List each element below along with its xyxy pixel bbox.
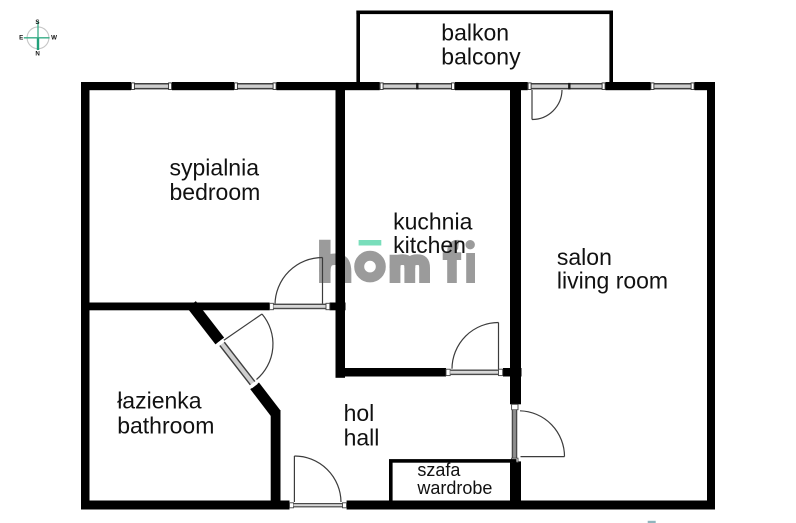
svg-text:S: S	[35, 19, 39, 26]
svg-text:łazienka: łazienka	[117, 388, 202, 414]
svg-text:bedroom: bedroom	[170, 179, 261, 205]
svg-text:kitchen: kitchen	[393, 232, 466, 258]
svg-text:sypialnia: sypialnia	[170, 155, 260, 181]
svg-text:wardrobe: wardrobe	[416, 478, 492, 498]
svg-text:E: E	[19, 35, 23, 42]
svg-text:living room: living room	[557, 268, 668, 294]
svg-text:W: W	[51, 35, 57, 42]
svg-text:hall: hall	[344, 425, 380, 451]
svg-text:salon: salon	[557, 244, 612, 270]
svg-text:balkon: balkon	[441, 20, 509, 46]
svg-text:N: N	[35, 51, 40, 58]
svg-text:kuchnia: kuchnia	[393, 209, 472, 235]
svg-text:balcony: balcony	[441, 44, 521, 70]
svg-text:szafa: szafa	[417, 460, 461, 480]
svg-text:bathroom: bathroom	[117, 413, 214, 439]
svg-text:hol: hol	[344, 400, 375, 426]
